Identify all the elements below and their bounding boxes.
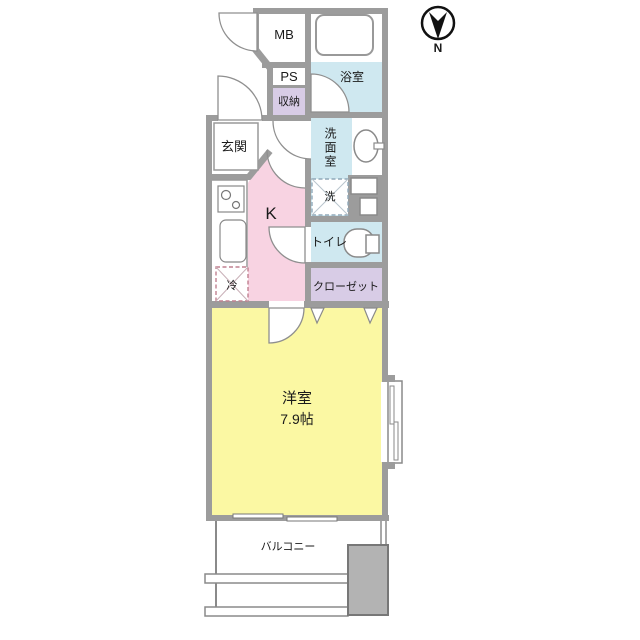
floorplan: N MB PS 収納 浴室 玄関 洗面室 洗 K トイレ クローゼット 冷 洋室… <box>0 0 640 640</box>
stove <box>218 186 244 212</box>
utility-box-2 <box>360 198 377 215</box>
entrance-door-arc <box>218 76 262 120</box>
label-washroom: 洗面室 <box>323 127 337 169</box>
balcony-partition-bar <box>205 574 348 583</box>
label-washer: 洗 <box>325 190 336 203</box>
wall-entrance-bottom <box>206 174 250 180</box>
window-sash-bottom <box>394 422 398 460</box>
wall-ps-left <box>267 66 273 121</box>
label-ps: PS <box>280 69 298 84</box>
label-mb: MB <box>274 27 294 42</box>
label-kitchen: K <box>265 204 277 223</box>
label-entrance: 玄関 <box>221 139 247 154</box>
gap-washroom-door <box>305 121 311 159</box>
label-toilet: トイレ <box>311 235 347 249</box>
label-closet: クローゼット <box>313 280 379 293</box>
label-storage: 収納 <box>278 95 300 108</box>
wall-mainroom-top-right <box>304 301 389 308</box>
wall-top <box>253 8 388 14</box>
wall-bath-bottom <box>305 112 388 118</box>
label-balcony: バルコニー <box>261 540 316 553</box>
window-sash-top <box>390 386 394 424</box>
window-stub-bottom <box>382 462 395 469</box>
bathtub <box>316 15 373 55</box>
window-stub-top <box>382 375 395 382</box>
sliding-sash-left <box>233 514 283 518</box>
kitchen-counter <box>212 180 247 267</box>
wall-mainroom-top-left <box>206 301 269 308</box>
compass-north-label: N <box>434 41 443 55</box>
label-main-room: 洋室 <box>282 390 312 407</box>
wall-entrance-top-right <box>262 115 311 121</box>
kitchen-sink <box>220 220 246 262</box>
balcony-bottom-bar <box>205 607 348 616</box>
balcony <box>205 521 388 616</box>
toilet-tank <box>366 235 379 253</box>
sliding-sash-right <box>287 517 337 521</box>
label-main-room-size: 7.9帖 <box>280 411 313 427</box>
wall-toilet-bottom <box>305 262 388 268</box>
label-bath: 浴室 <box>340 69 364 84</box>
wall-toilet-top <box>305 216 388 222</box>
utility-box-1 <box>351 178 377 194</box>
balcony-utility-box <box>348 545 388 615</box>
wall-ps-storage-divider <box>273 85 305 88</box>
label-fridge: 冷 <box>227 279 238 292</box>
compass: N <box>422 7 454 55</box>
basin-faucet <box>374 143 384 149</box>
mb-door-arc <box>219 13 257 51</box>
